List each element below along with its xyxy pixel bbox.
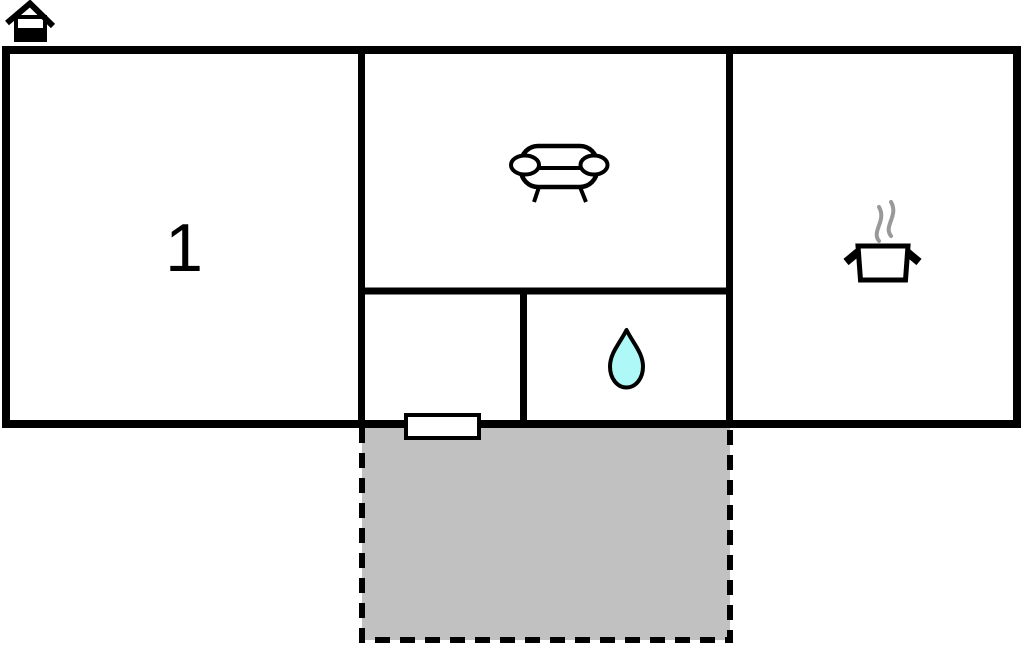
- terrace: [362, 426, 730, 640]
- terrace-fill: [362, 426, 730, 640]
- house-icon: [7, 4, 53, 43]
- outer-wall: [6, 50, 1017, 424]
- house-icon-base: [14, 28, 47, 42]
- sofa-armrest-left: [511, 156, 539, 175]
- floorplan-page: 1: [0, 0, 1024, 646]
- floorplan-svg: 1: [0, 0, 1024, 646]
- door-marker: [406, 415, 479, 438]
- room-1-label: 1: [165, 210, 203, 286]
- sofa-armrest-right: [581, 156, 608, 175]
- pot-body: [858, 246, 908, 280]
